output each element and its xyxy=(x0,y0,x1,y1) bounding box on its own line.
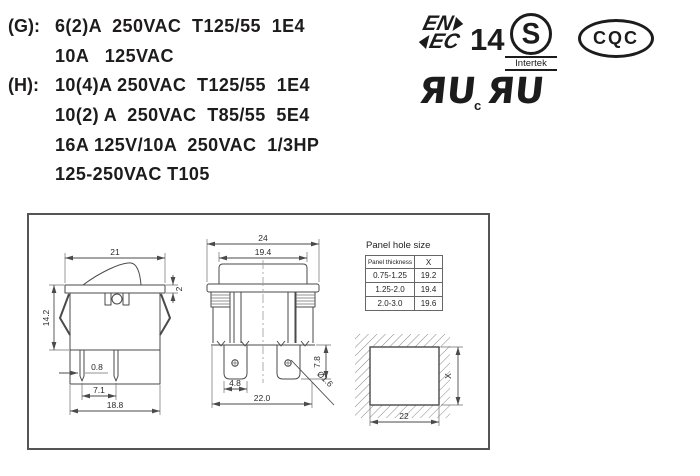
switch-side-view: 21 2 14.2 0.8 7.1 18.8 xyxy=(41,247,184,415)
cul-c-prefix: c xyxy=(474,98,481,113)
ratings-block: (G): 6(2)A 250VAC T125/55 1E4 10A 125VAC… xyxy=(8,12,388,190)
table-header-x: X xyxy=(415,256,443,269)
rating-line: 10(2) A 250VAC T85/55 5E4 xyxy=(8,101,388,131)
intertek-s-letter: S xyxy=(522,19,541,48)
table-header-thickness: Panel thickness xyxy=(366,256,415,269)
side-flange-thickness-dim: 2 xyxy=(174,286,184,291)
panel-cutout-view: X 22 xyxy=(355,334,463,426)
rating-line: 16A 125V/10A 250VAC 1/3HP xyxy=(8,130,388,160)
table-cell-x: 19.2 xyxy=(415,269,443,283)
table-cell-thickness: 0.75-1.25 xyxy=(366,269,415,283)
rating-text: 125-250VAC T105 xyxy=(55,164,210,185)
front-terminal-width-dim: 4.8 xyxy=(229,378,241,388)
cqc-text: CQC xyxy=(593,28,639,49)
rating-line: 125-250VAC T105 xyxy=(8,160,388,190)
rating-text: 10A 125VAC xyxy=(55,46,174,67)
switch-front-view: 24 19.4 4.8 22.0 7.8 Ø1.6 xyxy=(207,233,335,408)
table-cell-x: 19.6 xyxy=(415,297,443,311)
table-row: 0.75-1.25 19.2 xyxy=(366,269,443,283)
ul-recognized-component-icon: ЯU xyxy=(417,74,478,110)
side-pin-thickness-dim: 0.8 xyxy=(91,362,103,372)
rating-label: (G): xyxy=(8,16,55,37)
front-terminal-length-dim: 7.8 xyxy=(312,356,322,368)
front-flange-width-dim: 24 xyxy=(258,233,268,243)
side-body-width-dim: 18.8 xyxy=(107,400,124,410)
cutout-height-dim: X xyxy=(443,373,453,379)
rating-text: 10(2) A 250VAC T85/55 5E4 xyxy=(55,105,310,126)
rating-line: (H): 10(4)A 250VAC T125/55 1E4 xyxy=(8,71,388,101)
intertek-s-circle-icon: S xyxy=(510,13,552,55)
panel-hole-size-table: Panel thickness X 0.75-1.25 19.2 1.25-2.… xyxy=(365,255,443,311)
technical-drawing-frame: 21 2 14.2 0.8 7.1 18.8 xyxy=(27,213,490,450)
side-height-dim: 14.2 xyxy=(41,309,51,326)
rating-line: 10A 125VAC xyxy=(8,42,388,72)
table-row: 2.0-3.0 19.6 xyxy=(366,297,443,311)
panel-table-title: Panel hole size xyxy=(366,240,430,251)
table-row: 1.25-2.0 19.4 xyxy=(366,283,443,297)
side-pin-spacing-dim: 7.1 xyxy=(93,385,105,395)
rating-text: 16A 125V/10A 250VAC 1/3HP xyxy=(55,135,319,156)
table-header-row: Panel thickness X xyxy=(366,256,443,269)
table-cell-x: 19.4 xyxy=(415,283,443,297)
enec-line2: EC xyxy=(417,33,462,51)
enec-certification-icon: EN EC 14 xyxy=(415,13,515,68)
front-rocker-width-dim: 19.4 xyxy=(255,247,272,257)
side-top-width-dim: 21 xyxy=(110,247,120,257)
rating-label: (H): xyxy=(8,75,55,96)
enec-number: 14 xyxy=(470,22,504,58)
rating-text: 10(4)A 250VAC T125/55 1E4 xyxy=(55,75,310,96)
cutout-width-dim: 22 xyxy=(399,411,409,421)
intertek-label: Intertek xyxy=(505,56,557,71)
front-body-width-dim: 22.0 xyxy=(254,393,271,403)
cqc-certification-icon: CQC xyxy=(578,19,654,58)
enec-letters: EN EC xyxy=(417,15,466,51)
table-cell-thickness: 2.0-3.0 xyxy=(366,297,415,311)
rating-line: (G): 6(2)A 250VAC T125/55 1E4 xyxy=(8,12,388,42)
table-cell-thickness: 1.25-2.0 xyxy=(366,283,415,297)
rating-text: 6(2)A 250VAC T125/55 1E4 xyxy=(55,16,305,37)
cul-recognized-component-icon: ЯU xyxy=(485,74,546,110)
intertek-s-certification-icon: S Intertek xyxy=(505,13,557,71)
